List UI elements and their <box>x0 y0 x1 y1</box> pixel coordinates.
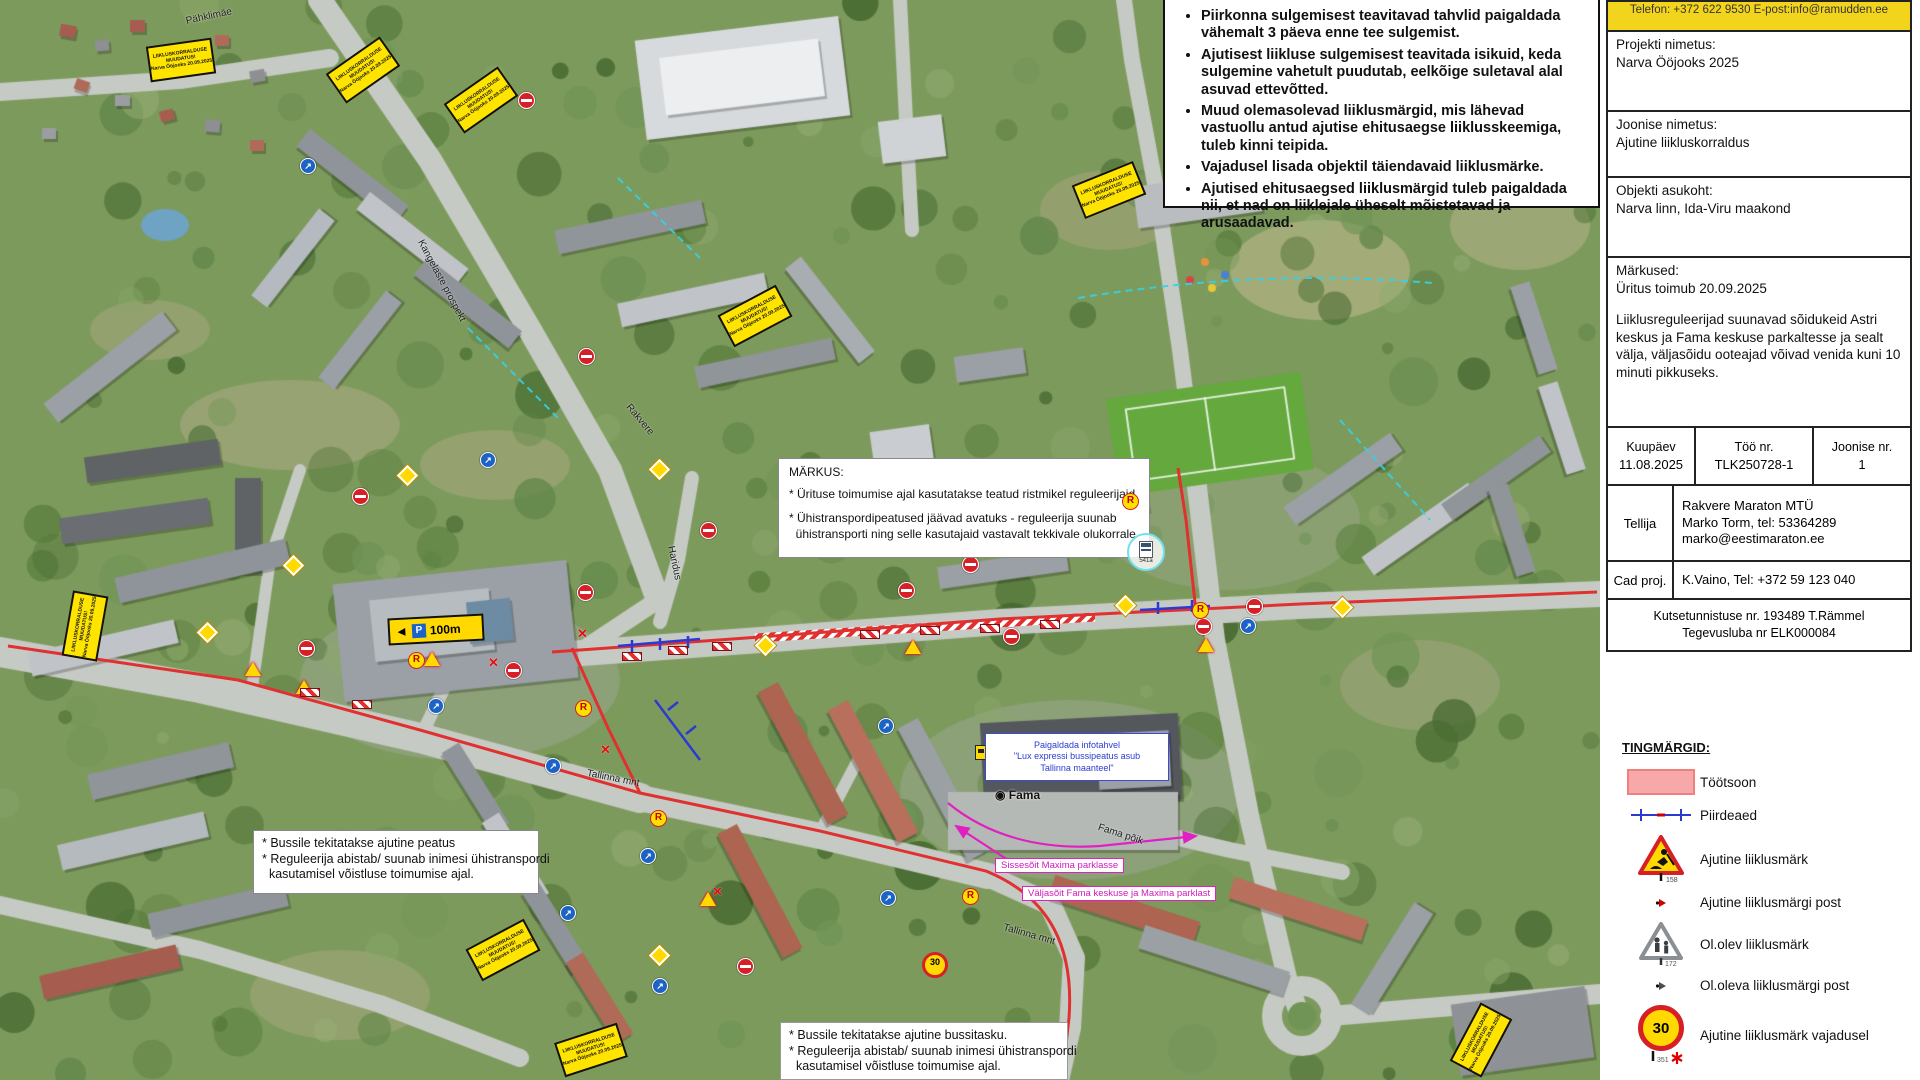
legend-item-temp-sign: 158 Ajutine liiklusmärk <box>1622 835 1912 883</box>
legend-item-speed30: 30 351 Ajutine liiklusmärk vajadusel <box>1622 1005 1912 1065</box>
bus-note-line: * Bussile tekitatakse ajutine peatus <box>262 836 530 852</box>
certificate-line1: Kutsetunnistuse nr. 193489 T.Rämmel <box>1653 608 1864 625</box>
project-name-row: Projekti nimetus: Narva Ööjooks 2025 <box>1608 32 1910 112</box>
legend-item-workzone: Töötsoon <box>1622 769 1912 795</box>
bus-note-line: kasutamisel võistluse toimumise ajal. <box>789 1059 1059 1075</box>
bus-stop-sign-icon <box>1139 541 1153 558</box>
location-value: Narva linn, Ida-Viru maakond <box>1616 200 1902 218</box>
mandatory-blue-sign-icon: ↗ <box>880 890 896 906</box>
legend-item-temp-post: Ajutine liiklusmärgi post <box>1622 895 1912 910</box>
date-cell: Kuupäev 11.08.2025 <box>1608 428 1696 484</box>
no-entry-sign-icon <box>962 556 979 573</box>
client-label: Tellija <box>1608 486 1674 560</box>
legend-label: Ol.oleva liiklusmärgi post <box>1700 978 1849 993</box>
no-entry-sign-icon <box>298 640 315 657</box>
no-entry-sign-icon <box>352 488 369 505</box>
legend-item-existing-post: Ol.oleva liiklusmärgi post <box>1622 978 1912 993</box>
bus-note-line: * Reguleerija abistab/ suunab inimesi üh… <box>262 852 530 868</box>
worknr-cell: Töö nr. TLK250728-1 <box>1696 428 1814 484</box>
client-value: Rakvere Maraton MTÜ Marko Torm, tel: 533… <box>1674 486 1910 560</box>
legend-label: Ajutine liiklusmärgi post <box>1700 895 1841 910</box>
general-notes-box: Piirkonna sulgemisest teavitavad tahvlid… <box>1163 0 1600 208</box>
workzone-swatch-icon <box>1627 769 1695 795</box>
client-contact: Marko Torm, tel: 53364289 <box>1682 515 1902 532</box>
warning-triangle-sign-icon <box>424 652 440 666</box>
worknr-label: Töö nr. <box>1735 440 1774 454</box>
magenta-flow-lines <box>948 803 1196 860</box>
location-label: Objekti asukoht: <box>1616 182 1902 200</box>
date-value: 11.08.2025 <box>1619 457 1683 472</box>
bus-note-west: * Bussile tekitatakse ajutine peatus * R… <box>253 830 539 894</box>
mandatory-blue-sign-icon: ↗ <box>652 978 668 994</box>
speed-30-map-sign: 30 <box>922 952 948 978</box>
legend-label: Ajutine liiklusmärk vajadusel <box>1700 1028 1869 1043</box>
legend-label: Töötsoon <box>1700 775 1756 790</box>
company-contact-header: Telefon: +372 622 9530 E-post:info@ramud… <box>1608 2 1910 32</box>
regulator-position-icon: R <box>1192 602 1209 619</box>
maxima-exit-label: Väljasõit Fama keskuse ja Maxima parklas… <box>1022 886 1216 901</box>
drawing-value: Ajutine liikluskorraldus <box>1616 134 1902 152</box>
markus-item-2a: * Ühistranspordipeatused jäävad avatuks … <box>789 511 1139 525</box>
client-email: marko@eestimaraton.ee <box>1682 531 1902 548</box>
closed-x-mark: ✕ <box>712 884 723 900</box>
title-block-panel: Telefon: +372 622 9530 E-post:info@ramud… <box>1600 0 1920 1080</box>
barrier-marker-icon <box>622 652 642 661</box>
title-block: Telefon: +372 622 9530 E-post:info@ramud… <box>1606 0 1912 652</box>
sign-ref-351: 351 <box>1657 1057 1669 1064</box>
mandatory-blue-sign-icon: ↗ <box>878 718 894 734</box>
mandatory-blue-sign-icon: ↗ <box>480 452 496 468</box>
barrier-marker-icon <box>352 700 372 709</box>
no-entry-sign-icon <box>1003 628 1020 645</box>
bus-note-south: * Bussile tekitatakse ajutine bussitasku… <box>780 1022 1068 1080</box>
barrier-marker-icon <box>668 646 688 655</box>
pedestrian-sign-icon: 172 <box>1622 922 1700 966</box>
parking-distance: 100m <box>430 621 461 637</box>
regulator-icon: R <box>1122 493 1139 510</box>
note-item: Vajadusel lisada objektil täiendavaid li… <box>1201 159 1588 176</box>
warning-triangle-sign-icon <box>1198 638 1214 652</box>
remarks-paragraph: Liiklusreguleerijad suunavad sõidukeid A… <box>1616 311 1902 381</box>
barrier-marker-icon <box>712 642 732 651</box>
no-entry-sign-icon <box>577 584 594 601</box>
drawing-label: Joonise nimetus: <box>1616 116 1902 134</box>
legend-label: Ajutine liiklusmärk <box>1700 852 1808 867</box>
note-item: Piirkonna sulgemisest teavitavad tahvlid… <box>1201 8 1588 43</box>
remarks-event-date: Üritus toimub 20.09.2025 <box>1616 280 1902 298</box>
client-row: Tellija Rakvere Maraton MTÜ Marko Torm, … <box>1608 486 1910 562</box>
red-route-lines <box>8 468 1597 1080</box>
legend: TINGMÄRGID: Töötsoon Piirdeaed <box>1622 740 1912 1077</box>
bus-stop-ref-icon: 541a <box>1127 533 1165 571</box>
company-contact: Telefon: +372 622 9530 E-post:info@ramud… <box>1630 4 1888 16</box>
markus-item-1: * Ürituse toimumise ajal kasutatakse tea… <box>789 487 1139 501</box>
bus-stop-ref: 541a <box>1139 558 1152 564</box>
mandatory-blue-sign-icon: ↗ <box>300 158 316 174</box>
markus-title: MÄRKUS: <box>789 465 1139 479</box>
regulator-position-icon: R <box>650 810 667 827</box>
date-label: Kuupäev <box>1626 440 1675 454</box>
note-item: Ajutised ehitusaegsed liiklusmärgid tule… <box>1201 181 1588 233</box>
regulator-position-icon: R <box>575 700 592 717</box>
drawingnr-label: Joonise nr. <box>1832 440 1892 454</box>
speed-30-value: 30 <box>1653 1020 1670 1037</box>
mandatory-blue-sign-icon: ↗ <box>640 848 656 864</box>
parking-100m-sign: ◄ P 100m <box>387 614 484 646</box>
legend-title: TINGMÄRGID: <box>1622 740 1912 755</box>
project-label: Projekti nimetus: <box>1616 36 1902 54</box>
mandatory-blue-sign-icon: ↗ <box>545 758 561 774</box>
location-row: Objekti asukoht: Narva linn, Ida-Viru ma… <box>1608 178 1910 258</box>
warning-triangle-sign-icon <box>905 640 921 654</box>
closed-x-mark: ✕ <box>600 742 611 758</box>
sign-ref-158: 158 <box>1666 877 1678 883</box>
barrier-marker-icon <box>1040 620 1060 629</box>
mandatory-blue-sign-icon: ↗ <box>560 905 576 921</box>
info-board-line: Paigaldada infotahvel <box>1034 740 1120 751</box>
no-entry-sign-icon <box>700 522 717 539</box>
barrier-marker-icon <box>300 688 320 697</box>
certificate-line2: Tegevusluba nr ELK000084 <box>1682 625 1836 642</box>
poi-fama: ◉ Fama <box>995 788 1040 802</box>
bus-note-line: kasutamisel võistluse toimumise ajal. <box>262 867 530 883</box>
no-entry-sign-icon <box>1246 598 1263 615</box>
cad-label: Cad proj. <box>1608 562 1674 598</box>
mandatory-blue-sign-icon: ↗ <box>1240 618 1256 634</box>
left-arrow-icon: ◄ <box>395 624 409 638</box>
bus-note-line: * Bussile tekitatakse ajutine bussitasku… <box>789 1028 1059 1044</box>
regulator-position-icon: R <box>962 888 979 905</box>
remarks-label: Märkused: <box>1616 262 1902 280</box>
warning-triangle-sign-icon <box>245 662 261 676</box>
closed-x-mark: ✕ <box>577 626 588 642</box>
cad-row: Cad proj. K.Vaino, Tel: +372 59 123 040 <box>1608 562 1910 600</box>
project-value: Narva Ööjooks 2025 <box>1616 54 1902 72</box>
no-entry-sign-icon <box>1195 618 1212 635</box>
no-entry-sign-icon <box>505 662 522 679</box>
maxima-entry-label: Sissesõit Maxima parklasse <box>995 858 1124 873</box>
temp-sign-post-icon <box>1622 897 1700 909</box>
client-org: Rakvere Maraton MTÜ <box>1682 498 1902 515</box>
barrier-marker-icon <box>920 626 940 635</box>
note-item: Muud olemasolevad liiklusmärgid, mis läh… <box>1201 103 1588 155</box>
drawing-name-row: Joonise nimetus: Ajutine liikluskorraldu… <box>1608 112 1910 178</box>
existing-sign-post-icon <box>1622 980 1700 992</box>
legend-label: Ol.olev liiklusmärk <box>1700 937 1809 952</box>
asterisk-icon <box>1672 1052 1682 1064</box>
fence-line-icon <box>1622 807 1700 823</box>
roadworks-sign-icon: 158 <box>1622 835 1700 883</box>
no-entry-sign-icon <box>578 348 595 365</box>
bus-note-line: * Reguleerija abistab/ suunab inimesi üh… <box>789 1044 1059 1060</box>
parking-icon: P <box>412 623 427 638</box>
regulator-position-icon: R <box>408 652 425 669</box>
closed-x-mark: ✕ <box>488 655 499 671</box>
info-board-line: Tallinna maanteel" <box>1040 763 1113 774</box>
worknr-value: TLK250728-1 <box>1715 457 1794 472</box>
legend-item-existing-sign: 172 Ol.olev liiklusmärk <box>1622 922 1912 966</box>
speed-30-sign-icon: 30 351 <box>1622 1005 1700 1065</box>
legend-label: Piirdeaed <box>1700 808 1757 823</box>
barrier-marker-icon <box>860 630 880 639</box>
no-entry-sign-icon <box>737 958 754 975</box>
info-board-note: Paigaldada infotahvel "Lux expressi buss… <box>985 733 1169 781</box>
notes-list: Piirkonna sulgemisest teavitavad tahvlid… <box>1171 8 1588 233</box>
meta-row: Kuupäev 11.08.2025 Töö nr. TLK250728-1 J… <box>1608 428 1910 486</box>
certificate-row: Kutsetunnistuse nr. 193489 T.Rämmel Tege… <box>1608 600 1910 650</box>
markus-note-box: MÄRKUS: * Ürituse toimumise ajal kasutat… <box>778 458 1150 558</box>
no-entry-sign-icon <box>518 92 535 109</box>
sign-ref-172: 172 <box>1665 961 1677 966</box>
drawingnr-cell: Joonise nr. 1 <box>1814 428 1910 484</box>
legend-item-fence: Piirdeaed <box>1622 807 1912 823</box>
info-board-line: "Lux expressi bussipeatus asub <box>1014 751 1140 762</box>
traffic-plan-sheet: { "notes": { "items": [ "Piirkonna sulge… <box>0 0 1920 1080</box>
remarks-row: Märkused: Üritus toimub 20.09.2025 Liikl… <box>1608 258 1910 428</box>
barrier-marker-icon <box>980 624 1000 633</box>
drawingnr-value: 1 <box>1858 457 1865 472</box>
mandatory-blue-sign-icon: ↗ <box>428 698 444 714</box>
markus-item-2b: ühistransporti ning selle kasutajaid vas… <box>789 527 1139 541</box>
no-entry-sign-icon <box>898 582 915 599</box>
note-item: Ajutisest liikluse sulgemisest teavitada… <box>1201 47 1588 99</box>
cad-value: K.Vaino, Tel: +372 59 123 040 <box>1674 562 1910 598</box>
